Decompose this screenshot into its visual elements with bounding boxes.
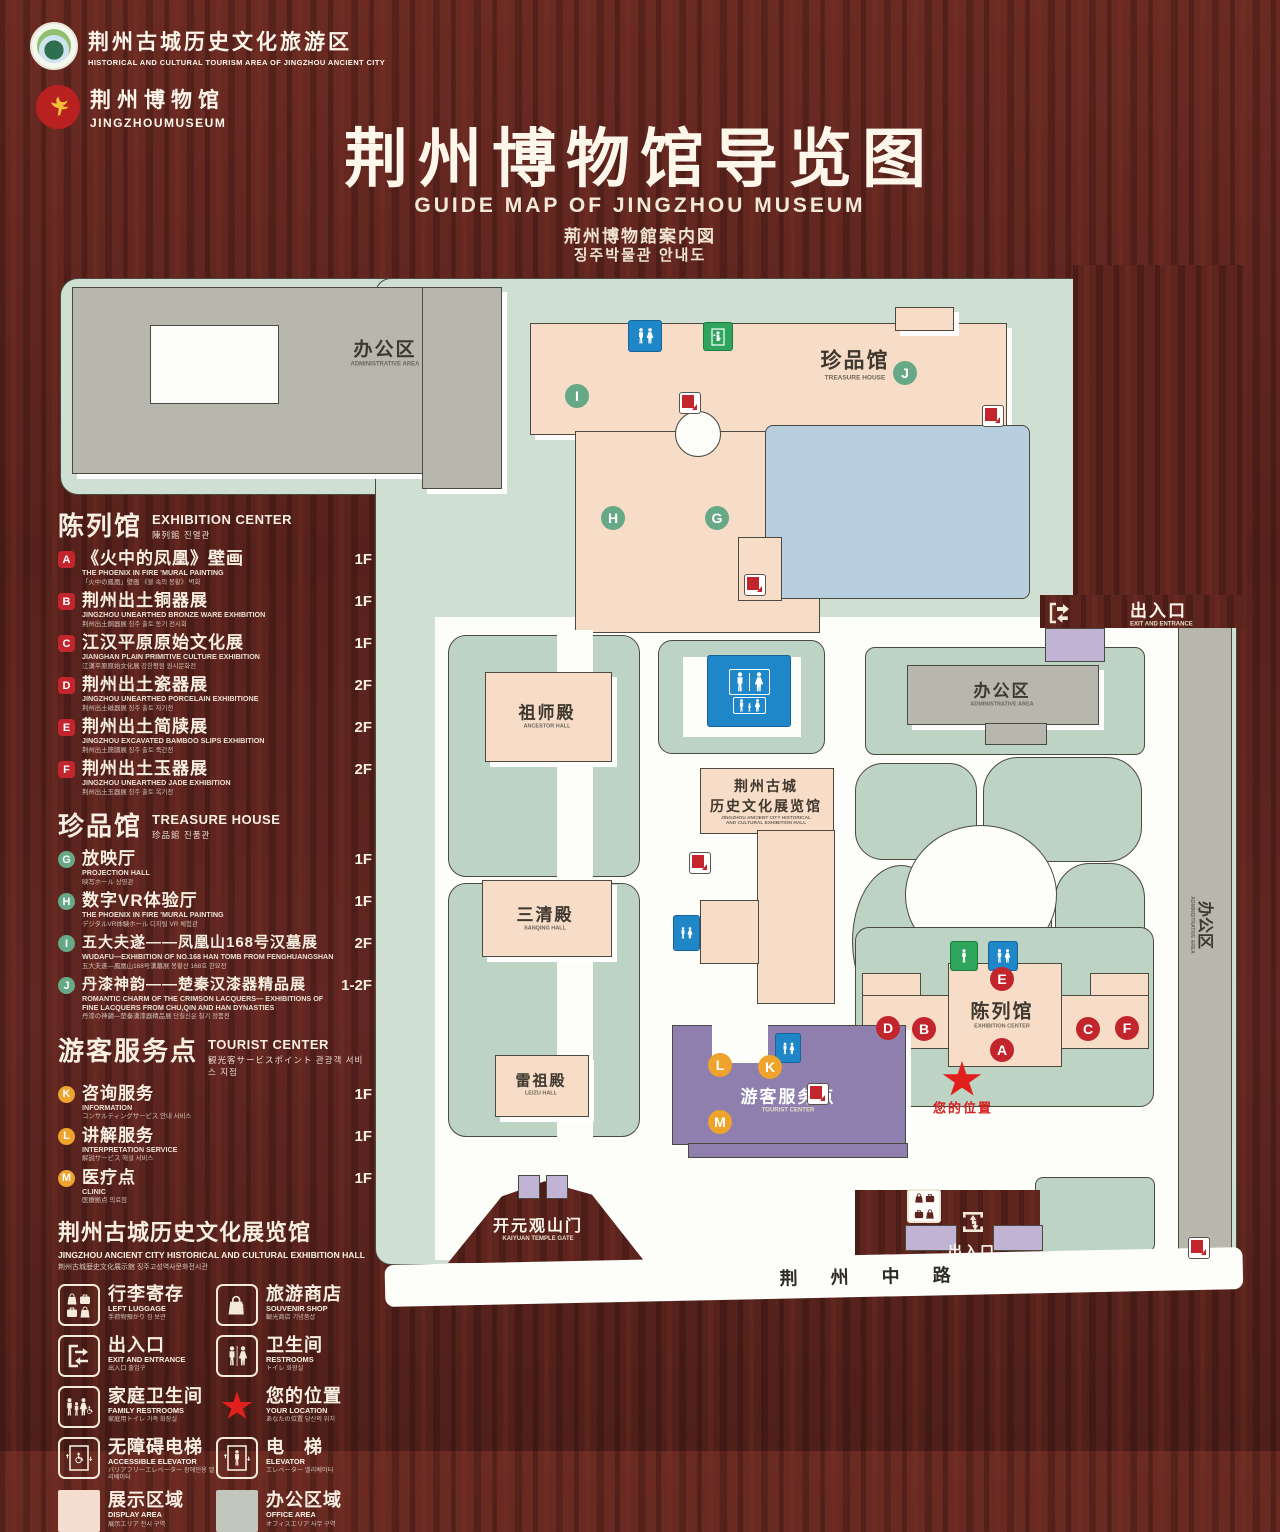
badge-h: H (58, 893, 75, 910)
label-admin-strip: 办公区 ADMINISTRATIVE AREA (1189, 896, 1219, 954)
legend-accessible-elevator: 无障碍电梯ACCESSIBLE ELEVATORバリアフリーエレベーター 장애인… (58, 1437, 216, 1482)
map-marker-c: C (1076, 1017, 1100, 1041)
section-exhibition-en: EXHIBITION CENTER (152, 512, 292, 527)
exit-entrance-icon (58, 1335, 100, 1377)
brand-tourism-zh: 荆州古城历史文化旅游区 (88, 26, 385, 56)
legend-item-i: I 五大夫遂——凤凰山168号汉墓展 WUDAFU—EXHIBITION OF … (58, 933, 372, 970)
legend-exit-entrance: 出入口EXIT AND ENTRANCE出入口 출입구 (58, 1335, 216, 1377)
service-point-icon-1 (679, 392, 701, 414)
map-marker-f: F (1115, 1016, 1139, 1040)
admin-courtyard (150, 325, 279, 404)
legend-family-restrooms: 家庭卫生间FAMILY RESTROOMS家庭用トイレ 가족 화장실 (58, 1386, 216, 1428)
page-subtitle-ko: 징주박물관 안내도 (0, 244, 1280, 265)
legend-souvenir-shop: 旅游商店SOUVENIR SHOP観光商店 기념품샵 (216, 1284, 372, 1326)
section-treasure-sub: 珍品館 진품관 (152, 829, 280, 841)
service-point-icon-3 (744, 574, 766, 596)
legend-item-b: B 荆州出土铜器展 JINGZHOU UNEARTHED BRONZE WARE… (58, 591, 372, 628)
label-road: 荆 州 中 路 (779, 1261, 965, 1291)
your-location-icon (216, 1386, 258, 1428)
green-block-botright (1035, 1177, 1155, 1252)
building-tourist-skirt (688, 1143, 908, 1158)
section-treasure-zh: 珍品馆 (58, 806, 142, 843)
map-marker-k: K (758, 1055, 782, 1079)
exit-top-icon (1048, 602, 1070, 624)
gate-pylon-east (546, 1175, 568, 1199)
map-marker-h: H (601, 506, 625, 530)
building-history-hall-wing (700, 900, 759, 964)
restrooms-icon (216, 1335, 258, 1377)
legend-item-g: G 放映厅 PROJECTION HALL映写ホール 상영관 1F (58, 849, 372, 886)
legend-item-k: K 咨询服务 INFORMATIONコンサルティングサービス 안내 서비스 1F (58, 1084, 372, 1121)
legend-item-h: H 数字VR体验厅 THE PHOENIX IN FIRE 'MURAL PAI… (58, 891, 372, 928)
legend-item-j: J 丹漆神韵——楚秦汉漆器精品展 ROMANTIC CHARM OF THE C… (58, 975, 372, 1021)
service-point-icon-6 (1188, 1237, 1210, 1259)
legend-restrooms: 卫生间RESTROOMSトイレ 화장실 (216, 1335, 372, 1377)
souvenir-shop-icon (216, 1284, 258, 1326)
floor-i: 2F (354, 935, 372, 952)
floor-b: 1F (354, 593, 372, 610)
wood-overlay-topright (1073, 265, 1245, 617)
icon-legend: 行李寄存LEFT LUGGAGE手荷物預かり 짐 보관 旅游商店SOUVENIR… (58, 1284, 372, 1532)
section-treasure-en: TREASURE HOUSE (152, 812, 280, 827)
exit-bottom-icon (960, 1209, 986, 1235)
label-exhibition: 陈列馆 EXHIBITION CENTER (970, 997, 1033, 1030)
badge-e: E (58, 719, 75, 736)
page-subtitle-en: GUIDE MAP OF JINGZHOU MUSEUM (0, 194, 1280, 218)
map-marker-g: G (705, 506, 729, 530)
label-sanqing: 三清殿 SANQING HALL (517, 901, 574, 932)
floor-f: 2F (354, 761, 372, 778)
building-history-hall-main (757, 830, 835, 1004)
map-marker-j: J (893, 361, 917, 385)
hall-note-jk: 荆州古城歴史文化展示館 징주고성역사문화전시관 (58, 1262, 372, 1272)
label-treasure: 珍品馆 TREASURE HOUSE (821, 345, 890, 382)
building-treasure-top (530, 323, 1007, 435)
legend-item-l: L 讲解服务 INTERPRETATION SERVICE解説サービス 해설 서… (58, 1126, 372, 1163)
label-your-location: 您的位置 (933, 1098, 993, 1117)
label-gate: 开元观山门 KAIYUAN TEMPLE GATE (493, 1212, 583, 1242)
legend-item-m: M 医疗点 CLINIC医療拠点 의료점 1F (58, 1168, 372, 1205)
label-exit-top: 出入口 EXIT AND ENTRANCE (1130, 597, 1193, 628)
accessible-elevator-icon (58, 1437, 100, 1479)
label-leizu: 雷祖殿 LEIZU HALL (515, 1070, 566, 1097)
restrooms-history-icon (673, 915, 700, 951)
floor-k: 1F (354, 1086, 372, 1103)
badge-f: F (58, 761, 75, 778)
family-restrooms-icon (58, 1386, 100, 1428)
badge-b: B (58, 593, 75, 610)
section-tourist-center: 游客服务点 TOURIST CENTER 観光客サービスポイント 관광객 서비스… (58, 1031, 372, 1078)
brand-tourism-en: HISTORICAL AND CULTURAL TOURISM AREA OF … (88, 58, 385, 67)
elevator-icon (216, 1437, 258, 1479)
floor-j: 1-2F (341, 977, 372, 994)
map-marker-i: I (565, 384, 589, 408)
service-point-icon-2 (982, 405, 1004, 427)
page-title: 荆州博物馆导览图 (0, 108, 1280, 200)
badge-d: D (58, 677, 75, 694)
legend-item-d: D 荆州出土瓷器展 JINGZHOU UNEARTHED PORCELAIN E… (58, 675, 372, 712)
label-admin-right: 办公区 ADMINISTRATIVE AREA (970, 677, 1033, 708)
map-marker-e: E (990, 967, 1014, 991)
building-admin-right-notch (985, 723, 1047, 745)
section-tourist-sub: 観光客サービスポイント 관광객 서비스 지점 (208, 1054, 372, 1078)
service-point-icon-5 (807, 1083, 829, 1105)
treasure-courtyard-notch (675, 411, 721, 457)
legend-office-area: 办公区域OFFICE AREAオフィスエリア 사무 구역 (216, 1490, 372, 1532)
section-tourist-zh: 游客服务点 (58, 1031, 198, 1068)
legend-display-area: 展示区域DISPLAY AREA展示エリア 전시 구역 (58, 1490, 216, 1532)
map-marker-m: M (708, 1110, 732, 1134)
label-history-hall: 荆州古城 历史文化展览馆 JINGZHOU ANCIENT CITY HISTO… (710, 776, 822, 826)
section-exhibition-center: 陈列馆 EXHIBITION CENTER 陳列館 진열관 (58, 506, 372, 543)
left-luggage-icon (58, 1284, 100, 1326)
floor-g: 1F (354, 851, 372, 868)
legend-item-f: F 荆州出土玉器展 JINGZHOU UNEARTHED JADE EXHIBI… (58, 759, 372, 796)
section-tourist-en: TOURIST CENTER (208, 1037, 372, 1052)
floor-h: 1F (354, 893, 372, 910)
badge-g: G (58, 851, 75, 868)
floor-a: 1F (354, 551, 372, 568)
badge-m: M (58, 1170, 75, 1187)
badge-l: L (58, 1128, 75, 1145)
left-luggage-map-icon (907, 1189, 941, 1223)
map-marker-l: L (708, 1053, 732, 1077)
floor-m: 1F (354, 1170, 372, 1187)
hall-note: 荆州古城历史文化展览馆 JINGZHOU ANCIENT CITY HISTOR… (58, 1215, 372, 1272)
badge-a: A (58, 551, 75, 568)
map-marker-a: A (990, 1038, 1014, 1062)
elevator-treasure-icon (703, 322, 733, 351)
gate-pylon-west (518, 1175, 540, 1199)
building-treasure-stub (895, 307, 954, 331)
section-exhibition-zh: 陈列馆 (58, 506, 142, 543)
legend-item-a: A 《火中的凤凰》壁画 THE PHOENIX IN FIRE 'MURAL P… (58, 549, 372, 586)
legend-sidebar: 陈列馆 EXHIBITION CENTER 陳列館 진열관 A 《火中的凤凰》壁… (58, 496, 372, 1532)
hall-note-en: JINGZHOU ANCIENT CITY HISTORICAL AND CUL… (58, 1250, 372, 1260)
badge-i: I (58, 935, 75, 952)
elevator-exhibition-icon (950, 941, 978, 971)
building-admin-wing (422, 287, 502, 489)
office-area-swatch (216, 1490, 258, 1532)
badge-j: J (58, 977, 75, 994)
pond-east (765, 425, 1030, 599)
brand-tourism-area: 荆州古城历史文化旅游区 HISTORICAL AND CULTURAL TOUR… (30, 22, 385, 70)
label-ancestor: 祖师殿 ANCESTOR HALL (519, 699, 576, 730)
restrooms-treasure-icon (628, 320, 662, 352)
floor-e: 2F (354, 719, 372, 736)
legend-your-location: 您的位置YOUR LOCATIONあなたの位置 당신의 위치 (216, 1386, 372, 1428)
badge-k: K (58, 1086, 75, 1103)
label-admin-top: 办公区 ADMINISTRATIVE AREA (351, 335, 420, 368)
legend-item-c: C 江汉平原原始文化展 JIANGHAN PLAIN PRIMITIVE CUL… (58, 633, 372, 670)
floor-c: 1F (354, 635, 372, 652)
section-treasure-house: 珍品馆 TREASURE HOUSE 珍品館 진품관 (58, 806, 372, 843)
gatehouse-top-exit (1045, 628, 1105, 662)
floor-d: 2F (354, 677, 372, 694)
map-marker-b: B (912, 1017, 936, 1041)
service-point-icon-4 (689, 852, 711, 874)
map-marker-d: D (876, 1016, 900, 1040)
hall-note-zh: 荆州古城历史文化展览馆 (58, 1215, 372, 1247)
badge-c: C (58, 635, 75, 652)
tourism-area-logo-icon (30, 22, 78, 70)
display-area-swatch (58, 1490, 100, 1532)
tourism-area-logo-emblem (37, 29, 71, 63)
legend-left-luggage: 行李寄存LEFT LUGGAGE手荷物預かり 짐 보관 (58, 1284, 216, 1326)
legend-item-e: E 荆州出土简牍展 JINGZHOU EXCAVATED BAMBOO SLIP… (58, 717, 372, 754)
floor-l: 1F (354, 1128, 372, 1145)
section-exhibition-sub: 陳列館 진열관 (152, 529, 292, 541)
legend-elevator: 电 梯ELEVATORエレベーター 엘리베이터 (216, 1437, 372, 1482)
restrooms-central-icon (707, 655, 791, 727)
